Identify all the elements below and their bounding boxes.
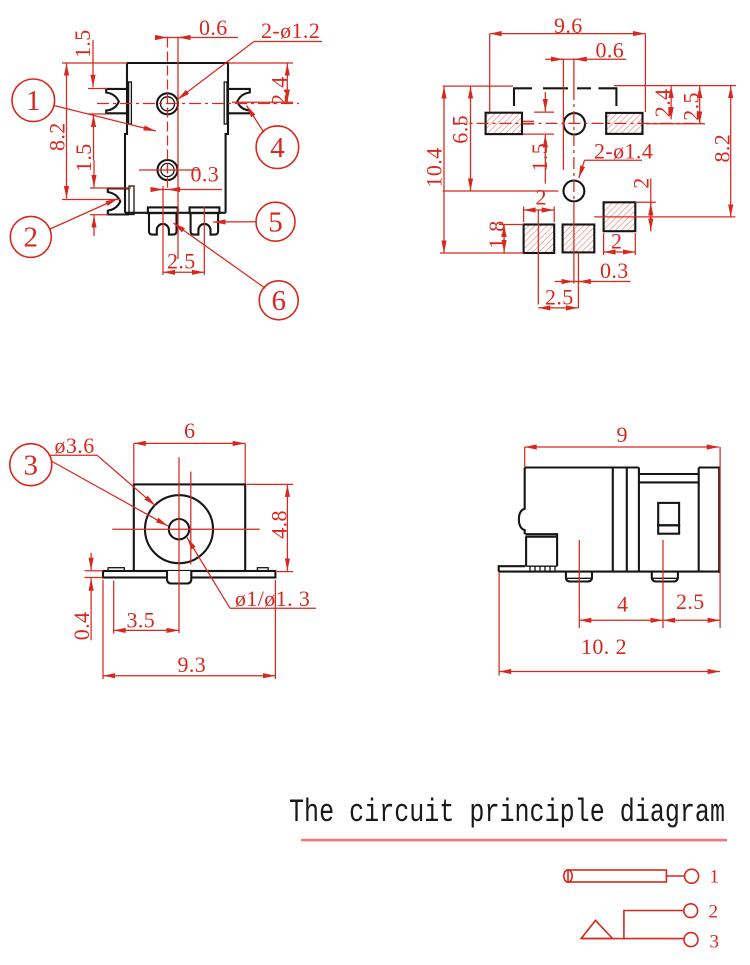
svg-text:0.3: 0.3 [191,162,220,187]
svg-text:1.5: 1.5 [527,143,552,172]
svg-text:2.5: 2.5 [679,92,704,121]
svg-text:3.5: 3.5 [127,608,156,633]
svg-text:0.6: 0.6 [199,15,228,40]
svg-text:2: 2 [611,228,622,253]
svg-text:8.2: 8.2 [710,134,735,163]
svg-text:0.6: 0.6 [596,38,625,63]
svg-text:1: 1 [26,85,41,117]
svg-text:2.4: 2.4 [650,88,675,117]
svg-text:9.6: 9.6 [554,13,583,38]
svg-text:2: 2 [24,222,39,254]
svg-text:10.4: 10.4 [422,147,447,187]
svg-text:2: 2 [709,902,719,923]
svg-text:3: 3 [710,932,720,953]
svg-text:2.4: 2.4 [267,76,292,105]
svg-text:1.5: 1.5 [71,143,96,172]
svg-text:ø3.6: ø3.6 [55,433,95,458]
svg-text:The circuit principle diagram: The circuit principle diagram [289,794,725,831]
svg-text:6: 6 [271,285,286,317]
svg-text:1.5: 1.5 [70,29,95,58]
svg-text:ø1/ø1. 3: ø1/ø1. 3 [235,586,310,611]
svg-text:2.5: 2.5 [167,248,196,273]
svg-text:5: 5 [268,206,283,238]
svg-text:4: 4 [270,132,285,164]
svg-text:2.5: 2.5 [676,589,705,614]
svg-text:4.8: 4.8 [267,510,292,539]
svg-text:2-ø1.4: 2-ø1.4 [594,138,653,163]
svg-text:1.8: 1.8 [484,220,509,249]
svg-text:8.2: 8.2 [45,122,70,151]
svg-text:9.3: 9.3 [178,652,207,677]
svg-text:3: 3 [24,449,39,481]
svg-text:2: 2 [629,177,654,188]
svg-text:2-ø1.2: 2-ø1.2 [261,18,320,43]
svg-text:9: 9 [617,422,628,447]
svg-text:2: 2 [536,185,547,210]
svg-text:0.3: 0.3 [600,258,629,283]
svg-text:1: 1 [710,867,720,888]
svg-text:4: 4 [617,591,628,616]
svg-text:2.5: 2.5 [545,285,574,310]
svg-text:6.5: 6.5 [448,115,473,144]
svg-text:0.4: 0.4 [69,612,94,641]
svg-text:10. 2: 10. 2 [581,634,627,659]
svg-text:6: 6 [184,418,195,443]
